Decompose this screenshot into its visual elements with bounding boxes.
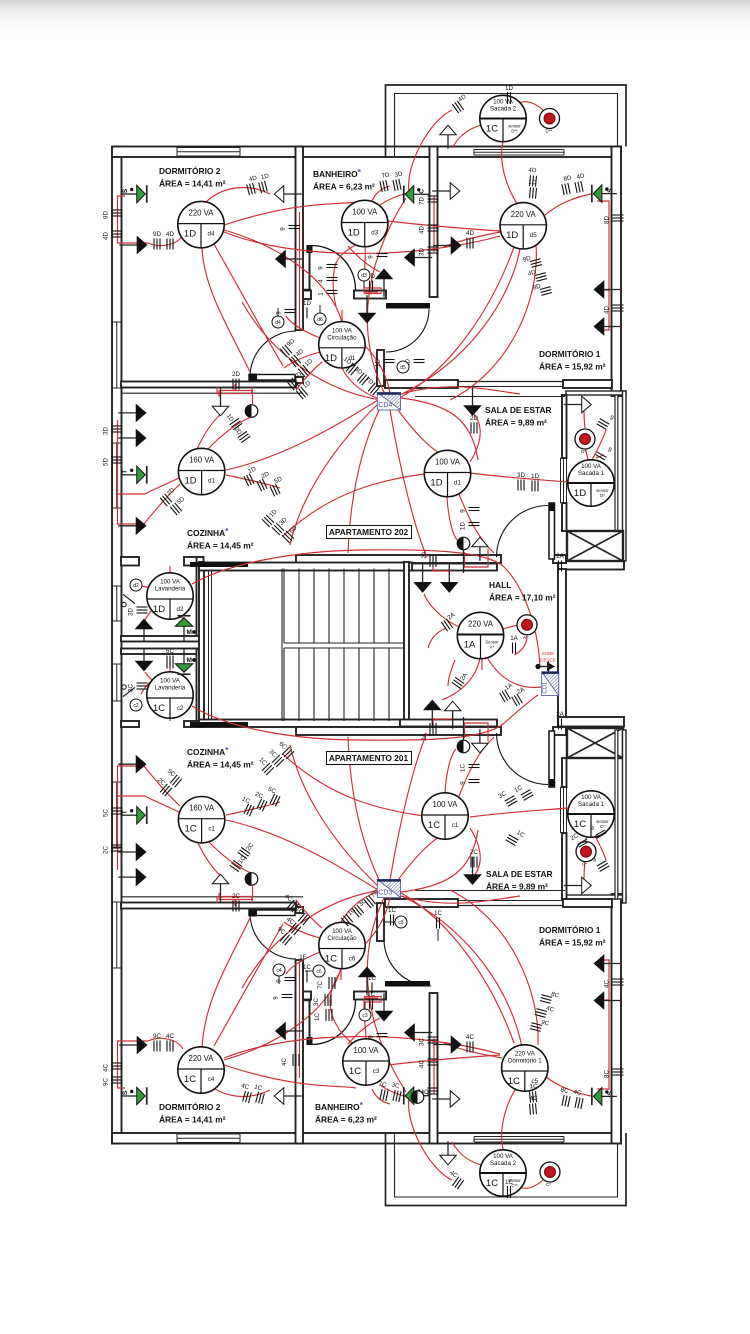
svg-text:1C: 1C bbox=[184, 1074, 196, 1085]
svg-text:220 VA: 220 VA bbox=[468, 620, 494, 629]
svg-text:M: M bbox=[187, 629, 192, 636]
svg-text:100 VA: 100 VA bbox=[433, 800, 459, 809]
svg-text:A*: A* bbox=[523, 635, 528, 640]
svg-text:DORMITÓRIO 1: DORMITÓRIO 1 bbox=[539, 924, 601, 935]
svg-text:100 VA: 100 VA bbox=[160, 579, 181, 586]
svg-text:BANHEIRO*: BANHEIRO* bbox=[315, 1100, 364, 1112]
svg-text:c6: c6 bbox=[349, 956, 356, 963]
svg-text:9C: 9C bbox=[103, 1078, 110, 1086]
svg-text:4D: 4D bbox=[419, 226, 426, 234]
svg-text:D**: D** bbox=[511, 129, 518, 134]
svg-text:1C: 1C bbox=[153, 703, 165, 714]
svg-text:C*: C* bbox=[600, 824, 605, 829]
svg-text:1D: 1D bbox=[375, 359, 382, 367]
svg-text:CD1: CD1 bbox=[543, 681, 549, 694]
svg-text:CD4: CD4 bbox=[378, 402, 392, 409]
svg-text:9C: 9C bbox=[153, 1033, 161, 1040]
svg-text:c3: c3 bbox=[373, 1068, 380, 1075]
svg-text:100 VA: 100 VA bbox=[332, 327, 353, 334]
svg-text:100 VA: 100 VA bbox=[332, 928, 353, 935]
svg-text:Sacada 1: Sacada 1 bbox=[578, 470, 605, 477]
svg-text:c1: c1 bbox=[452, 822, 459, 829]
svg-text:2C: 2C bbox=[470, 849, 478, 856]
svg-text:1C: 1C bbox=[486, 1178, 498, 1189]
svg-text:1D: 1D bbox=[153, 604, 165, 615]
svg-text:CD3: CD3 bbox=[378, 890, 392, 897]
svg-text:6C: 6C bbox=[166, 648, 174, 655]
svg-text:9: 9 bbox=[368, 1035, 375, 1039]
svg-text:C*: C* bbox=[546, 1182, 551, 1187]
svg-text:d1: d1 bbox=[208, 478, 215, 485]
svg-text:APARTAMENTO 201: APARTAMENTO 201 bbox=[329, 753, 409, 763]
svg-text:c2: c2 bbox=[177, 705, 184, 712]
svg-text:2A: 2A bbox=[421, 550, 428, 558]
svg-text:ÁREA = 6,23 m²: ÁREA = 6,23 m² bbox=[313, 181, 375, 192]
svg-text:Lavanderia: Lavanderia bbox=[155, 586, 186, 593]
svg-text:BANHEIRO*: BANHEIRO* bbox=[313, 167, 362, 179]
svg-text:ÁREA = 6,23 m²: ÁREA = 6,23 m² bbox=[315, 1114, 377, 1125]
svg-text:3D: 3D bbox=[103, 427, 110, 435]
svg-text:1D: 1D bbox=[430, 478, 442, 489]
svg-text:1D: 1D bbox=[460, 522, 467, 530]
svg-text:Dormitório 1: Dormitório 1 bbox=[508, 1058, 542, 1065]
svg-text:7C: 7C bbox=[317, 981, 324, 989]
svg-text:5D: 5D bbox=[103, 458, 110, 466]
svg-text:Circulação: Circulação bbox=[327, 935, 357, 942]
svg-text:c2: c2 bbox=[133, 703, 139, 709]
svg-text:100 VA: 100 VA bbox=[435, 458, 461, 467]
svg-text:220 VA: 220 VA bbox=[189, 1054, 215, 1063]
svg-text:1D: 1D bbox=[528, 179, 537, 187]
svg-text:SALA DE ESTAR: SALA DE ESTAR bbox=[486, 869, 553, 879]
svg-text:2A: 2A bbox=[421, 732, 428, 740]
svg-text:220 VA: 220 VA bbox=[511, 210, 537, 219]
svg-text:4C: 4C bbox=[466, 1034, 474, 1041]
svg-text:c4: c4 bbox=[208, 1076, 215, 1083]
svg-text:1C: 1C bbox=[185, 824, 197, 835]
svg-text:D*: D* bbox=[600, 493, 605, 498]
svg-text:1C: 1C bbox=[434, 910, 442, 917]
svg-text:220 VA: 220 VA bbox=[515, 1051, 536, 1058]
svg-text:1C: 1C bbox=[367, 991, 375, 998]
svg-text:160 VA: 160 VA bbox=[189, 456, 215, 465]
svg-text:SALA DE ESTAR: SALA DE ESTAR bbox=[485, 405, 552, 415]
svg-text:C*: C* bbox=[582, 862, 587, 867]
svg-text:ÁREA = 14,41 m²: ÁREA = 14,41 m² bbox=[159, 1114, 226, 1125]
svg-text:D*: D* bbox=[581, 449, 586, 454]
svg-text:D**: D** bbox=[546, 129, 553, 134]
svg-text:d6: d6 bbox=[317, 317, 323, 323]
svg-text:100 VA: 100 VA bbox=[581, 794, 602, 801]
svg-text:S: S bbox=[122, 1090, 129, 1095]
svg-text:100 VA: 100 VA bbox=[354, 1046, 380, 1055]
svg-text:HALL: HALL bbox=[489, 580, 511, 590]
svg-text:9: 9 bbox=[460, 781, 467, 785]
svg-text:1C: 1C bbox=[325, 954, 337, 965]
svg-text:1D: 1D bbox=[185, 476, 197, 487]
svg-text:1: 1 bbox=[318, 292, 325, 296]
svg-text:4C: 4C bbox=[281, 1058, 288, 1066]
svg-text:Circulação: Circulação bbox=[327, 335, 357, 342]
svg-text:DORMITÓRIO 2: DORMITÓRIO 2 bbox=[159, 165, 221, 176]
svg-text:Sacada 2: Sacada 2 bbox=[490, 106, 517, 113]
svg-text:1E: 1E bbox=[299, 954, 307, 961]
svg-text:2A: 2A bbox=[556, 553, 564, 560]
svg-text:4C: 4C bbox=[419, 1060, 426, 1068]
svg-text:COZINHA*: COZINHA* bbox=[187, 526, 229, 538]
svg-text:4C: 4C bbox=[103, 1064, 110, 1072]
svg-text:ÁREA = 15,92 m²: ÁREA = 15,92 m² bbox=[539, 937, 606, 948]
svg-text:100 VA: 100 VA bbox=[352, 208, 378, 217]
svg-text:160 VA: 160 VA bbox=[189, 804, 215, 813]
svg-text:100 VA: 100 VA bbox=[581, 463, 602, 470]
svg-text:1A: 1A bbox=[510, 635, 518, 642]
svg-text:2D: 2D bbox=[232, 371, 240, 378]
svg-text:d4: d4 bbox=[275, 320, 281, 326]
svg-text:1C: 1C bbox=[508, 1076, 520, 1087]
svg-text:DORMITÓRIO 2: DORMITÓRIO 2 bbox=[159, 1101, 221, 1112]
svg-text:APARTAMENTO 202: APARTAMENTO 202 bbox=[329, 527, 409, 537]
svg-text:T: T bbox=[122, 470, 129, 474]
svg-text:1A: 1A bbox=[464, 640, 476, 651]
svg-text:5C: 5C bbox=[103, 809, 110, 817]
svg-text:4D: 4D bbox=[604, 306, 611, 314]
svg-text:d4: d4 bbox=[208, 231, 215, 238]
svg-text:9D: 9D bbox=[103, 211, 110, 219]
svg-text:4D: 4D bbox=[466, 230, 474, 237]
svg-text:1C: 1C bbox=[428, 820, 440, 831]
svg-text:c4: c4 bbox=[276, 968, 282, 974]
svg-text:8D: 8D bbox=[604, 216, 611, 224]
svg-text:d2: d2 bbox=[177, 606, 184, 613]
svg-text:2A: 2A bbox=[556, 711, 564, 718]
svg-text:ÁREA = 17,10 m²: ÁREA = 17,10 m² bbox=[489, 592, 556, 603]
svg-text:ÁREA = 9,89 m²: ÁREA = 9,89 m² bbox=[486, 881, 548, 892]
svg-text:1D: 1D bbox=[184, 229, 196, 240]
svg-text:4D: 4D bbox=[528, 167, 537, 175]
svg-text:c6: c6 bbox=[316, 969, 322, 975]
svg-text:SOBE: SOBE bbox=[542, 651, 555, 656]
svg-text:3D: 3D bbox=[128, 608, 135, 616]
svg-text:9: 9 bbox=[460, 509, 467, 513]
svg-text:ÁREA = 14,41 m²: ÁREA = 14,41 m² bbox=[159, 178, 226, 189]
svg-text:8C: 8C bbox=[604, 1070, 611, 1078]
svg-text:ÁREA = 9,89 m²: ÁREA = 9,89 m² bbox=[485, 417, 547, 428]
svg-text:3C: 3C bbox=[419, 1038, 426, 1046]
svg-text:1D: 1D bbox=[303, 300, 311, 307]
svg-text:3D: 3D bbox=[419, 248, 426, 256]
svg-text:1D: 1D bbox=[348, 228, 360, 239]
svg-text:1C: 1C bbox=[368, 975, 376, 982]
svg-text:d5: d5 bbox=[530, 232, 537, 239]
svg-text:9: 9 bbox=[276, 311, 283, 315]
svg-text:c5: c5 bbox=[398, 920, 404, 926]
svg-text:Sacada 2: Sacada 2 bbox=[490, 1160, 517, 1167]
svg-text:d3: d3 bbox=[361, 273, 367, 279]
svg-text:1C: 1C bbox=[574, 819, 586, 830]
svg-text:1D: 1D bbox=[574, 488, 586, 499]
svg-text:COZINHA*: COZINHA* bbox=[187, 745, 229, 757]
svg-text:A*: A* bbox=[490, 645, 495, 650]
svg-text:1C: 1C bbox=[486, 124, 498, 135]
svg-text:ÁREA = 15,92 m²: ÁREA = 15,92 m² bbox=[539, 361, 606, 372]
svg-text:9: 9 bbox=[273, 996, 280, 1000]
svg-text:1C: 1C bbox=[505, 1179, 513, 1186]
svg-text:1D: 1D bbox=[506, 230, 518, 241]
svg-text:1D: 1D bbox=[325, 353, 337, 364]
svg-text:DORMITÓRIO 1: DORMITÓRIO 1 bbox=[539, 348, 601, 359]
svg-text:4C: 4C bbox=[604, 980, 611, 988]
svg-text:9: 9 bbox=[280, 227, 287, 231]
svg-text:9D: 9D bbox=[153, 231, 161, 238]
svg-text:1C: 1C bbox=[303, 964, 311, 971]
svg-text:ÁREA = 14,45 m²: ÁREA = 14,45 m² bbox=[187, 759, 254, 770]
svg-text:4: 4 bbox=[318, 279, 325, 283]
svg-text:1C: 1C bbox=[529, 1083, 538, 1091]
svg-text:4D: 4D bbox=[166, 231, 174, 238]
svg-text:3D: 3D bbox=[517, 472, 525, 479]
svg-text:4D: 4D bbox=[103, 232, 110, 240]
svg-text:2C: 2C bbox=[103, 846, 110, 854]
svg-text:ÁREA = 14,45 m²: ÁREA = 14,45 m² bbox=[187, 540, 254, 551]
svg-text:1D: 1D bbox=[531, 473, 539, 480]
svg-text:c1: c1 bbox=[208, 826, 215, 833]
svg-text:100 VA: 100 VA bbox=[160, 678, 181, 685]
svg-text:1C: 1C bbox=[388, 907, 396, 914]
svg-text:3C: 3C bbox=[313, 998, 320, 1006]
svg-text:d1: d1 bbox=[454, 480, 461, 487]
svg-text:100 VA: 100 VA bbox=[493, 1153, 514, 1160]
svg-text:7D: 7D bbox=[419, 197, 426, 205]
svg-text:2D: 2D bbox=[470, 415, 478, 422]
svg-text:Sacada 1: Sacada 1 bbox=[578, 801, 605, 808]
svg-text:c3: c3 bbox=[362, 1013, 368, 1019]
svg-text:1D: 1D bbox=[505, 85, 513, 92]
svg-text:1C: 1C bbox=[460, 764, 467, 772]
svg-text:M: M bbox=[187, 657, 192, 664]
svg-text:1C: 1C bbox=[314, 1013, 321, 1021]
svg-text:d2: d2 bbox=[133, 583, 139, 589]
svg-text:d5: d5 bbox=[400, 365, 406, 371]
svg-text:T: T bbox=[122, 810, 129, 814]
svg-text:4C: 4C bbox=[166, 1033, 174, 1040]
svg-text:9: 9 bbox=[318, 266, 325, 270]
svg-text:220 VA: 220 VA bbox=[189, 209, 215, 218]
svg-text:9: 9 bbox=[368, 255, 375, 259]
svg-text:Lavanderia: Lavanderia bbox=[155, 685, 186, 692]
svg-text:S: S bbox=[122, 188, 129, 193]
svg-text:2C: 2C bbox=[232, 893, 240, 900]
svg-text:1C: 1C bbox=[349, 1066, 361, 1077]
svg-text:d3: d3 bbox=[371, 230, 378, 237]
svg-text:O: O bbox=[424, 1090, 429, 1096]
